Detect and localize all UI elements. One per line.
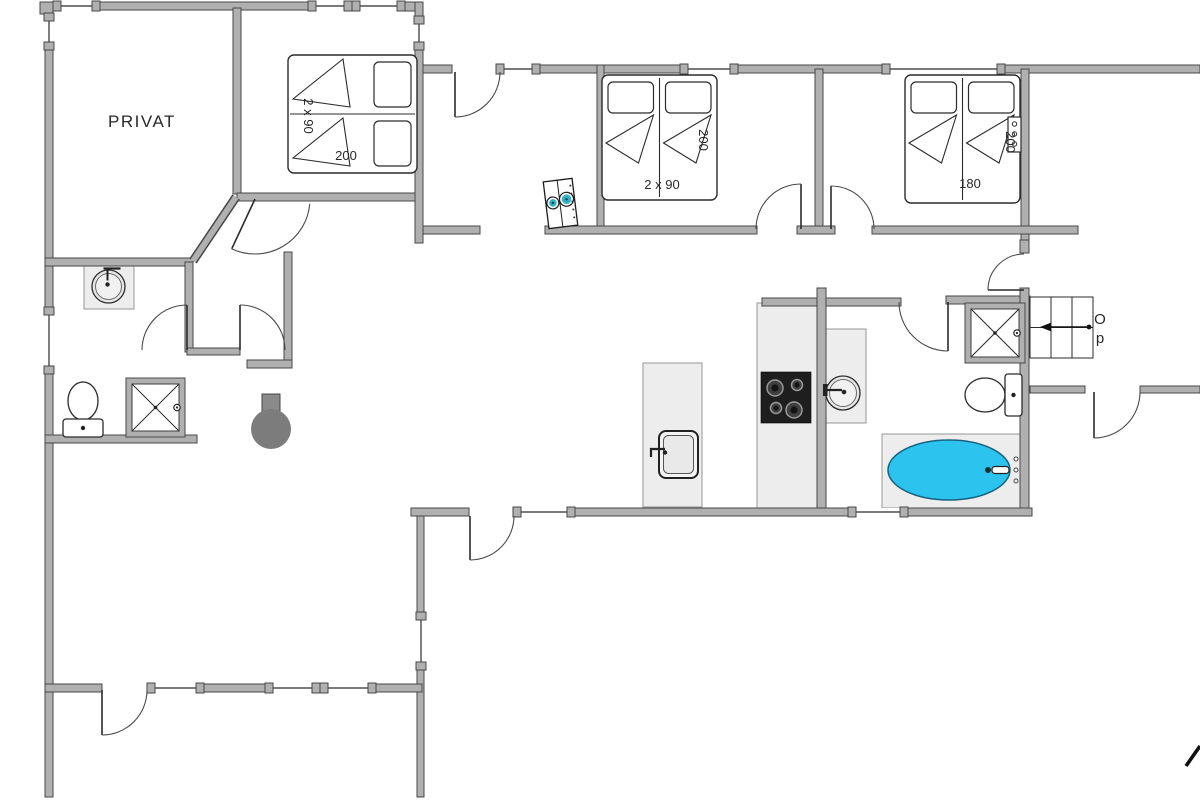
wall-segment xyxy=(797,226,835,234)
wall-segment xyxy=(1020,240,1029,253)
wall-segment xyxy=(908,508,1032,516)
wall-segment xyxy=(1021,69,1029,240)
label-bed-middle-length: 200 xyxy=(696,129,711,151)
door-bath-left xyxy=(142,305,187,350)
wall-segment xyxy=(575,508,848,516)
shower xyxy=(126,378,185,437)
fireplace xyxy=(251,394,291,449)
shower xyxy=(965,303,1025,363)
window xyxy=(53,1,100,11)
window xyxy=(416,612,426,670)
faucet-icon xyxy=(992,467,1009,474)
door-privat xyxy=(232,199,310,254)
wall-segment xyxy=(738,65,882,73)
wall-segment xyxy=(187,348,240,355)
label-bed-left-length: 200 xyxy=(335,148,357,163)
window xyxy=(265,683,320,693)
window xyxy=(848,507,908,517)
wall-segment xyxy=(540,65,680,73)
wall-segment xyxy=(45,50,53,307)
door-bath-main xyxy=(899,302,948,351)
pillow xyxy=(666,82,712,113)
wall-segment xyxy=(423,65,452,73)
wall-segment xyxy=(545,226,757,234)
label-stairs-up-p: p xyxy=(1096,330,1104,347)
pillow xyxy=(374,121,411,166)
door-hall-right xyxy=(1094,392,1140,438)
pillow xyxy=(608,82,654,113)
kitchen-sink xyxy=(651,431,698,478)
label-privat-room: PRIVAT xyxy=(108,112,176,131)
window xyxy=(414,16,424,50)
wall-diagonal xyxy=(193,197,236,261)
wall-segment xyxy=(45,684,102,692)
window xyxy=(680,64,738,74)
window xyxy=(320,683,376,693)
label-stairs-up-o: O xyxy=(1094,311,1106,328)
wall-segment xyxy=(415,2,423,16)
door-entry xyxy=(455,72,500,117)
wall-segment xyxy=(817,288,826,510)
wall-segment xyxy=(100,2,308,10)
wall-segment xyxy=(1140,386,1200,393)
wall-segment xyxy=(40,2,53,14)
window xyxy=(513,507,575,517)
wall-segment xyxy=(762,298,901,306)
wall-segment xyxy=(247,360,292,368)
pillow xyxy=(969,82,1015,113)
washing-machine xyxy=(543,178,578,228)
window xyxy=(882,64,1005,74)
label-bed-left-size: 2 x 90 xyxy=(301,98,316,133)
wall-segment xyxy=(45,258,193,266)
wall-segment xyxy=(233,8,241,194)
label-bed-middle-size: 2 x 90 xyxy=(644,177,679,192)
window xyxy=(44,13,54,50)
window xyxy=(496,64,540,74)
north-arrow-icon xyxy=(1186,746,1200,766)
wall-segment xyxy=(417,516,424,612)
wall-segment xyxy=(284,252,292,368)
toilet xyxy=(965,374,1022,416)
door-vestibule xyxy=(988,254,1024,290)
label-bed-right-size: 180 xyxy=(959,176,981,191)
door-living xyxy=(470,516,514,560)
door-bedroom-right xyxy=(831,186,874,229)
floor-plan-canvas: PRIVAT2 x 902002 x 90200180200Op xyxy=(0,0,1200,800)
wall-segment xyxy=(423,226,480,234)
door-bedroom-middle xyxy=(756,184,801,229)
wall-segment xyxy=(1030,386,1085,393)
wall-segment xyxy=(1005,65,1200,73)
window xyxy=(147,683,204,693)
pillow xyxy=(911,82,957,113)
floor-plan: PRIVAT2 x 902002 x 90200180200Op xyxy=(0,0,1200,800)
window xyxy=(352,1,405,11)
stove xyxy=(761,372,811,423)
pillow xyxy=(374,62,411,107)
wall-segment xyxy=(204,684,265,692)
window xyxy=(44,307,54,374)
wall-segment xyxy=(237,193,420,201)
wall-segment xyxy=(411,508,469,516)
door-corridor xyxy=(240,305,285,350)
window xyxy=(308,1,352,11)
label-bed-right-length: 200 xyxy=(1003,131,1018,153)
wall-segment xyxy=(815,69,823,231)
toilet xyxy=(63,382,103,437)
door-terrace xyxy=(102,690,147,735)
stairs xyxy=(1030,297,1093,358)
wall-segment xyxy=(376,684,422,692)
wall-segment xyxy=(872,226,1078,234)
